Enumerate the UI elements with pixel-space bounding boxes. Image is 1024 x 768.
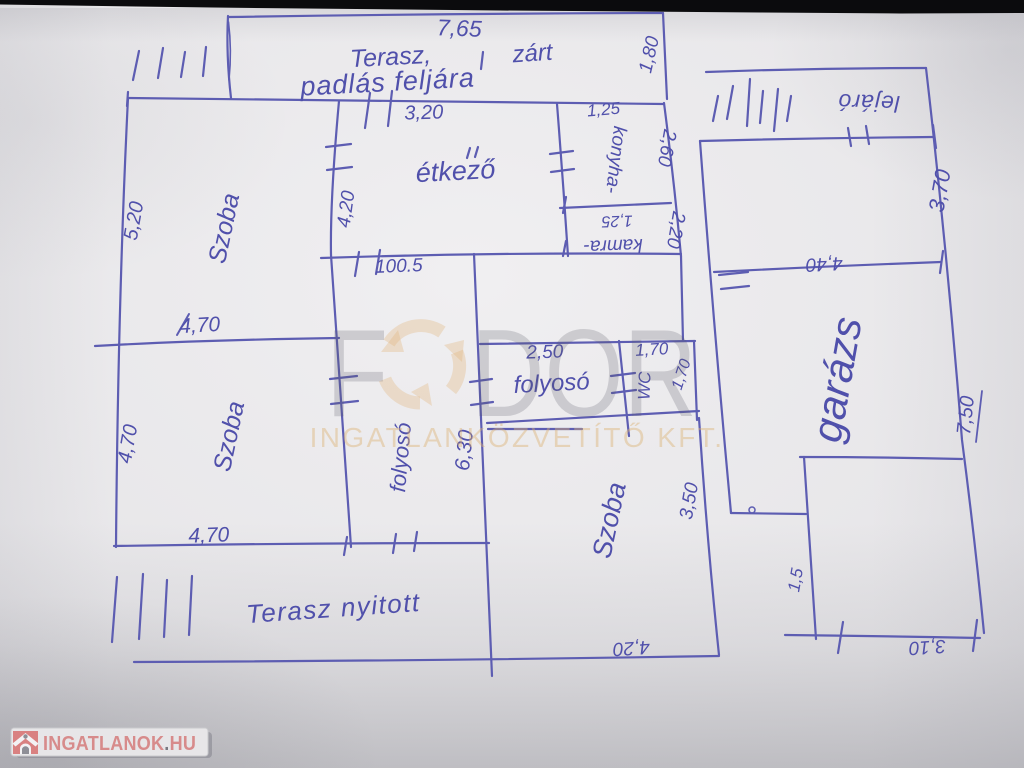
svg-text:7,65: 7,65: [436, 14, 482, 42]
svg-text:3,20: 3,20: [404, 101, 444, 124]
svg-text:INGATLANOK.HU: INGATLANOK.HU: [43, 733, 196, 755]
svg-text:7,50: 7,50: [953, 395, 979, 436]
svg-text:4,40: 4,40: [805, 252, 843, 275]
svg-text:étkező: étkező: [415, 154, 497, 188]
svg-text:4,70: 4,70: [179, 313, 221, 338]
svg-text:100.5: 100.5: [375, 255, 424, 278]
svg-text:4,70: 4,70: [188, 523, 230, 547]
svg-text:lejáró: lejáró: [837, 89, 900, 117]
svg-text:zárt: zárt: [511, 39, 555, 69]
svg-text:1,25: 1,25: [586, 99, 621, 121]
svg-text:kamra-: kamra-: [583, 234, 643, 257]
svg-text:4,20: 4,20: [612, 636, 651, 660]
svg-text:1,25: 1,25: [601, 211, 633, 229]
svg-text:INGATLANKÖZVETÍTŐ KFT.: INGATLANKÖZVETÍTŐ KFT.: [310, 422, 725, 453]
svg-text:3,10: 3,10: [908, 635, 947, 659]
